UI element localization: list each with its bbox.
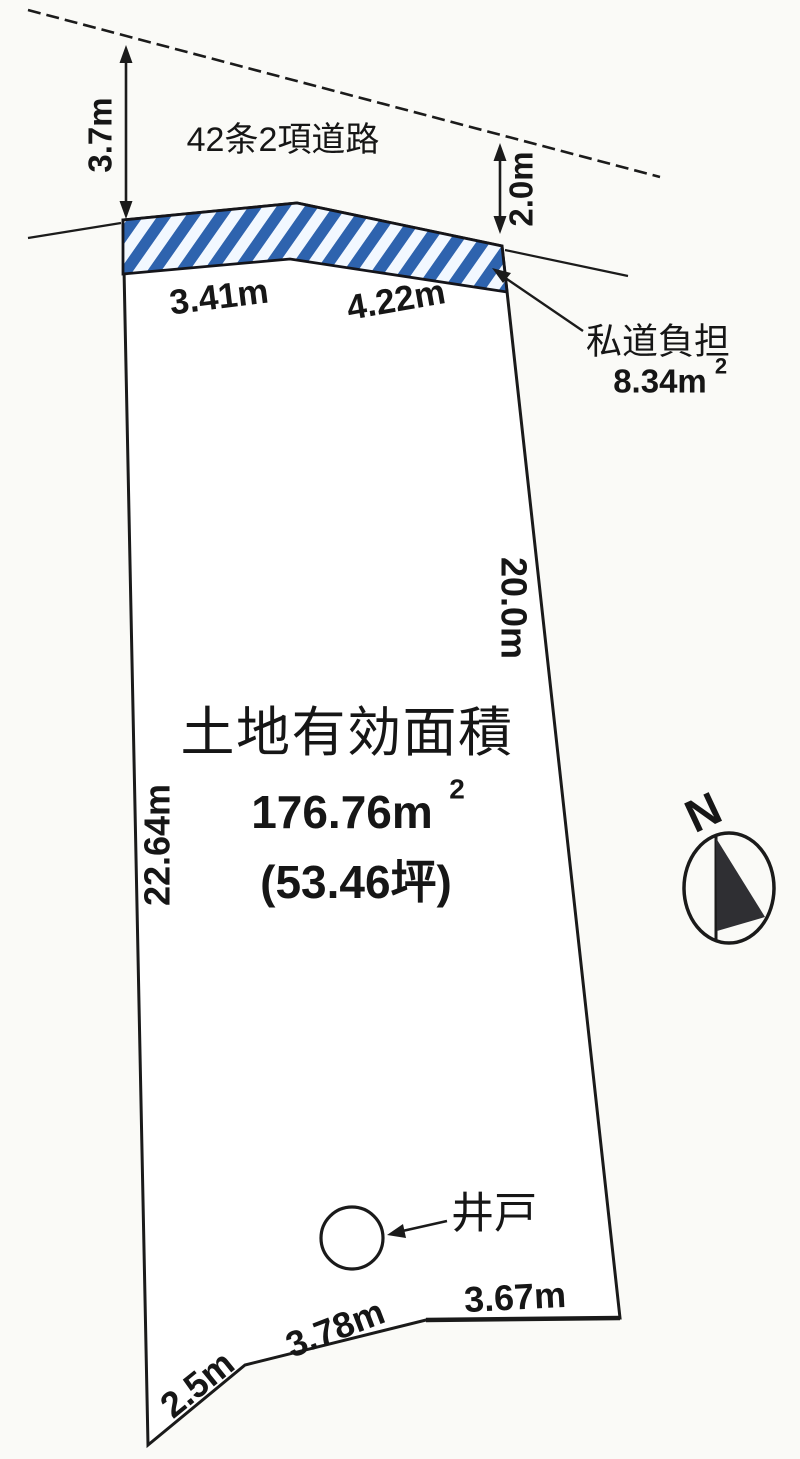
road-boundary-right-line xyxy=(505,250,628,276)
arrowhead-down-icon xyxy=(120,201,133,219)
private-road-area-label: 8.34m xyxy=(613,363,707,400)
road-name-label: 42条2項道路 xyxy=(187,121,380,159)
private-road-area-sup: 2 xyxy=(715,354,727,379)
well-label: 井戸 xyxy=(451,1190,537,1238)
parcel-area-label: 176.76m xyxy=(251,786,433,838)
dim-3-7m-label: 3.7m xyxy=(82,97,119,172)
compass: N xyxy=(677,781,774,943)
site-plan-svg: N 42条2項道路 3.7m 2.0m 3.41m 4.22m 私道負担 8.3… xyxy=(0,0,800,1459)
scan-page: N 42条2項道路 3.7m 2.0m 3.41m 4.22m 私道負担 8.3… xyxy=(0,0,800,1459)
side-west-label: 22.64m xyxy=(137,784,178,906)
private-road-label: 私道負担 xyxy=(586,321,730,362)
parcel-title-label: 土地有効面積 xyxy=(181,703,514,763)
dim-arrow-3-7m xyxy=(120,45,133,219)
parcel-bottom-thick-edge xyxy=(426,1318,620,1320)
bottom-right-label: 3.67m xyxy=(463,1274,567,1320)
parcel-area-tsubo-label: (53.46坪) xyxy=(260,856,452,908)
compass-needle xyxy=(716,838,765,931)
parcel-area-sup: 2 xyxy=(449,774,465,805)
side-east-label: 20.0m xyxy=(494,557,535,659)
well-circle xyxy=(321,1207,383,1269)
road-boundary-left-line xyxy=(28,223,121,238)
dim-2-0m-label: 2.0m xyxy=(503,151,540,226)
arrowhead-up-icon xyxy=(120,45,133,63)
